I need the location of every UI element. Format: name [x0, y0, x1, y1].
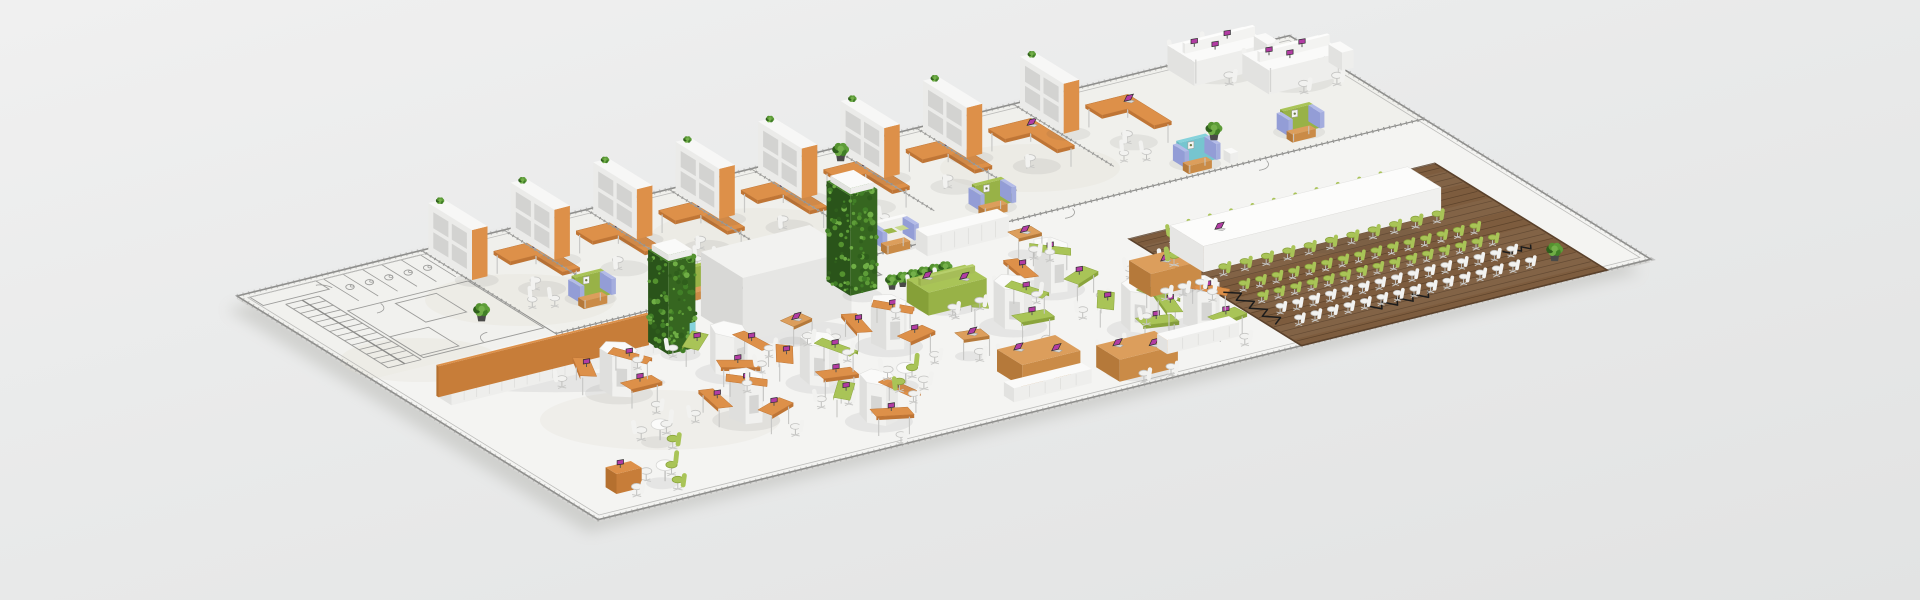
plant-wall-tower — [825, 170, 882, 303]
office-floorplan-3d-isometric-render — [0, 0, 1920, 600]
office-floorplan-render — [0, 0, 1920, 600]
white-bench-workstations — [1168, 25, 1354, 95]
